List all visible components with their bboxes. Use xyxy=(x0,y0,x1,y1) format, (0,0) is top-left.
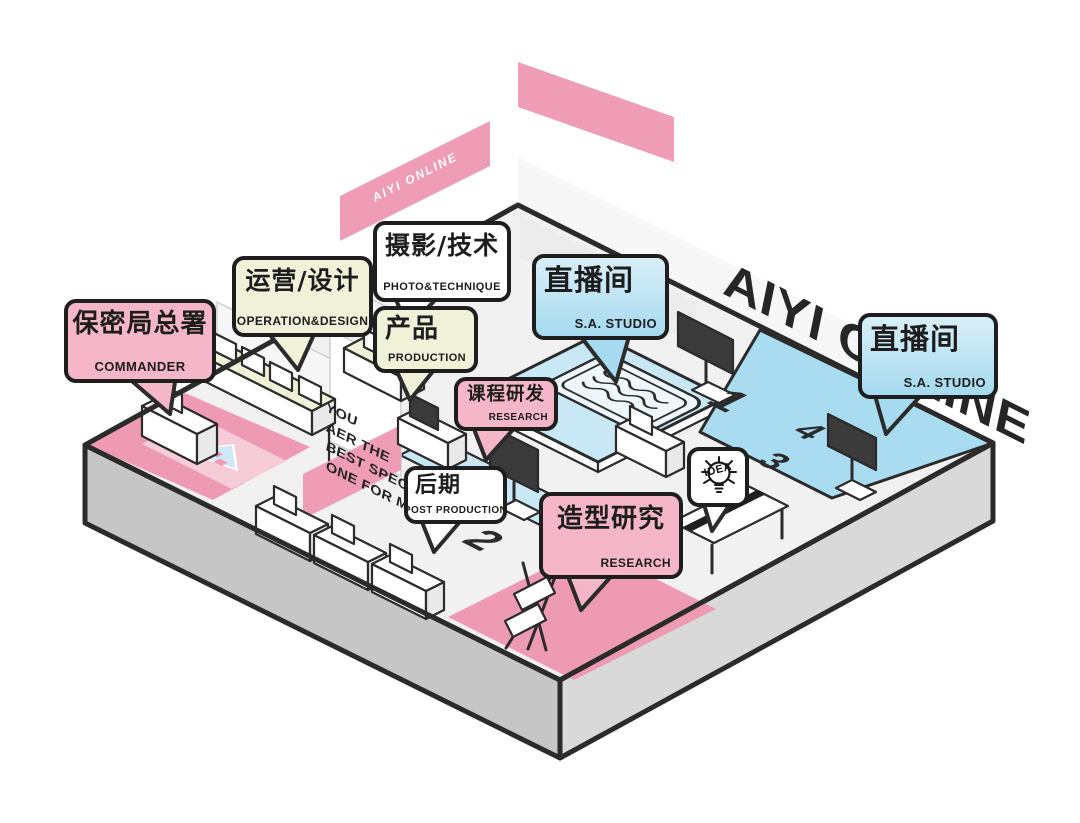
bubble-subtitle: RESEARCH xyxy=(600,556,671,570)
monitor xyxy=(214,333,236,362)
label-bubble-commander: 保密局总署 COMMANDER xyxy=(64,299,216,383)
monitor xyxy=(160,384,182,413)
bubble-title: 造型研究 xyxy=(557,505,665,533)
floor-number-3: 3 xyxy=(747,448,800,475)
bubble-subtitle: COMMANDER xyxy=(95,359,186,374)
banner-wordmark: AIYI ONLINE xyxy=(349,139,480,215)
studio1-desk xyxy=(616,406,684,477)
monitor xyxy=(270,362,292,391)
monitor xyxy=(274,486,296,515)
floor-number-2: 2 xyxy=(451,524,517,557)
bubble-subtitle: S.A. STUDIO xyxy=(904,375,986,390)
commander-rug xyxy=(142,416,287,488)
label-bubble-course: 课程研发 RESEARCH xyxy=(454,377,558,431)
monitor xyxy=(390,544,412,573)
bubble-subtitle: OPERATION&DESIGN xyxy=(237,314,369,328)
bubble-title: 后期 xyxy=(415,474,461,498)
floor-number-4: 4 xyxy=(782,418,835,445)
tv-screen xyxy=(678,312,733,374)
bubble-title: 摄影/技术 xyxy=(385,232,499,259)
bubble-subtitle: RESEARCH xyxy=(489,412,548,423)
floorplan-canvas: AIYI ONLINE AIYI ONLINE YOU AER THE BEST… xyxy=(0,0,1080,823)
bubble-title: 运营/设计 xyxy=(245,267,359,294)
monitor xyxy=(299,376,321,405)
pink-banners xyxy=(340,62,674,241)
monitor xyxy=(242,347,264,376)
studio-rug xyxy=(542,353,706,435)
label-bubble-studio-right: 直播间 S.A. STUDIO xyxy=(858,313,998,399)
bubble-title: 保密局总署 xyxy=(73,310,208,338)
label-bubble-styling: 造型研究 RESEARCH xyxy=(539,492,683,579)
label-bubble-production: 产品 PRODUCTION xyxy=(373,306,478,373)
commander-floor xyxy=(88,393,310,500)
monitor xyxy=(630,406,652,435)
bubble-subtitle: POST PRODUCTION xyxy=(404,505,507,516)
commander-desk xyxy=(142,384,217,464)
bubble-subtitle: S.A. STUDIO xyxy=(575,316,657,331)
label-bubble-operation: 运营/设计 OPERATION&DESIGN xyxy=(232,256,373,337)
dark-monitor xyxy=(410,394,438,430)
floor-number-1: 1 xyxy=(694,384,763,418)
bubble-title: 产品 xyxy=(385,315,439,343)
bubble-subtitle: PHOTO&TECHNIQUE xyxy=(383,281,501,293)
label-bubble-studio-main: 直播间 S.A. STUDIO xyxy=(532,254,669,340)
bubble-subtitle: PRODUCTION xyxy=(388,352,466,364)
bubble-title: 直播间 xyxy=(870,324,960,355)
label-bubble-post: 后期 POST PRODUCTION xyxy=(404,466,507,524)
idea-bubble: IDEA xyxy=(687,447,749,507)
label-bubble-photo: 摄影/技术 PHOTO&TECHNIQUE xyxy=(373,221,511,302)
monitor xyxy=(332,515,354,544)
bubble-title: 课程研发 xyxy=(467,385,545,405)
bubble-title: 直播间 xyxy=(544,265,634,296)
tv-screen xyxy=(828,414,876,470)
banner-right xyxy=(518,62,674,162)
